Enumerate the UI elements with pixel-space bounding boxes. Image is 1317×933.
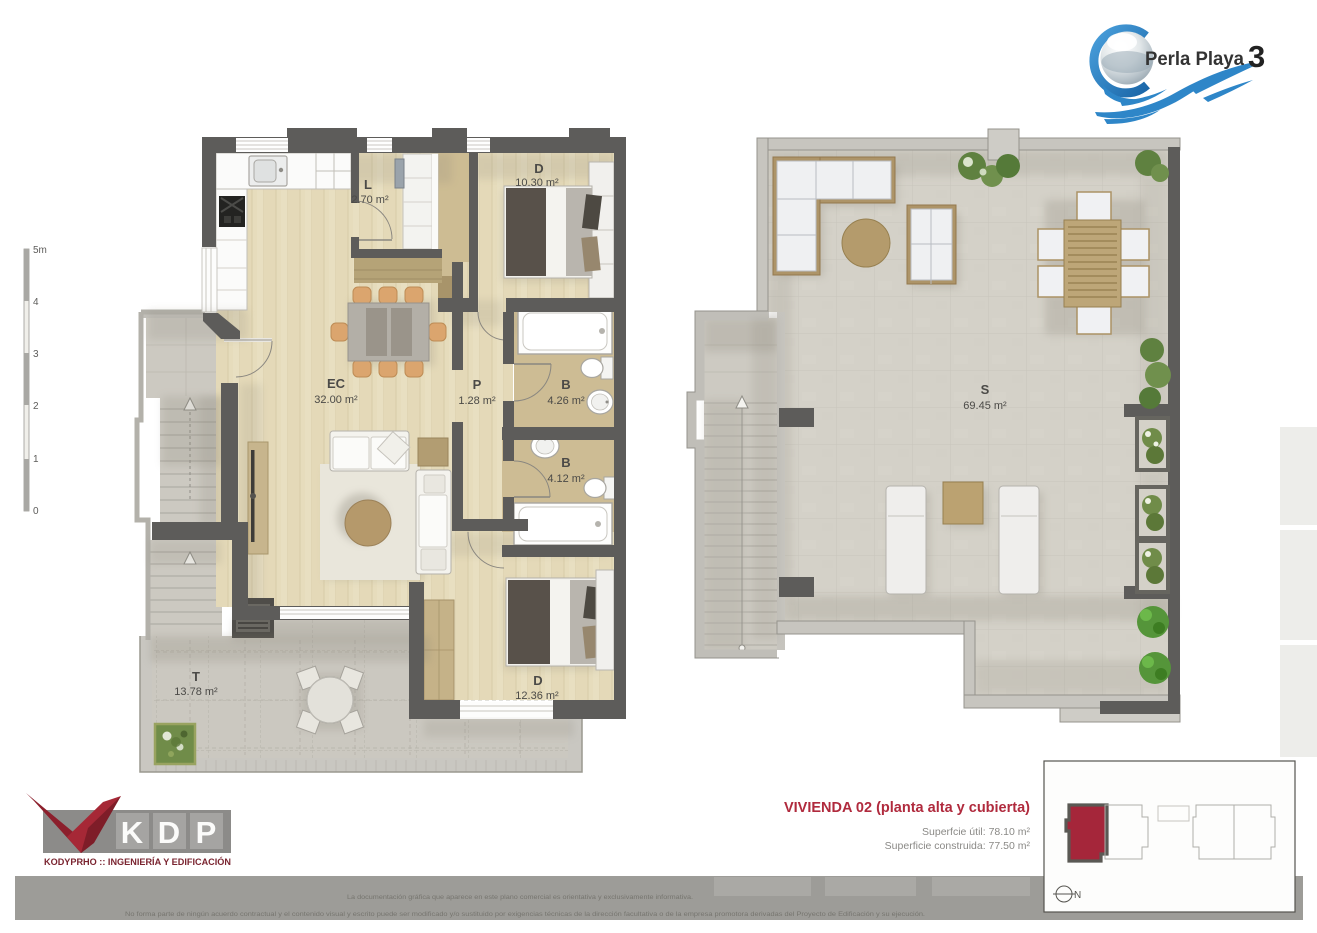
svg-text:0: 0	[33, 506, 39, 517]
svg-text:N: N	[1074, 890, 1081, 901]
svg-text:5m: 5m	[33, 245, 47, 256]
svg-text:D: D	[534, 161, 543, 176]
svg-text:K: K	[121, 815, 144, 850]
svg-text:EC: EC	[327, 376, 346, 391]
svg-text:Superficie construida: 77.50 m: Superficie construida: 77.50 m²	[885, 840, 1031, 852]
svg-text:L: L	[364, 177, 372, 192]
svg-text:La documentación gráfica que a: La documentación gráfica que aparece en …	[347, 894, 693, 901]
svg-text:T: T	[192, 669, 200, 684]
svg-text:3: 3	[33, 349, 39, 360]
svg-text:P: P	[196, 815, 217, 850]
svg-text:10.30 m²: 10.30 m²	[515, 177, 559, 189]
svg-text:KODYPRHO :: INGENIERÍA Y EDIFI: KODYPRHO :: INGENIERÍA Y EDIFICACIÓN	[44, 856, 231, 868]
svg-text:4: 4	[33, 297, 39, 308]
svg-text:4.12 m²: 4.12 m²	[547, 473, 585, 485]
svg-text:VIVIENDA 02 (planta alta y cub: VIVIENDA 02 (planta alta y cubierta)	[784, 800, 1030, 816]
svg-text:Superfcie útil: 78.10 m²: Superfcie útil: 78.10 m²	[922, 826, 1030, 838]
svg-text:B: B	[561, 377, 570, 392]
svg-text:No forma parte de ningún acuer: No forma parte de ningún acuerdo contrac…	[125, 911, 925, 918]
svg-text:69.45 m²: 69.45 m²	[963, 400, 1007, 412]
svg-text:B: B	[561, 455, 570, 470]
svg-text:S: S	[981, 382, 990, 397]
svg-text:2: 2	[33, 401, 39, 412]
svg-text:Perla Playa: Perla Playa	[1145, 49, 1244, 70]
svg-text:2.70 m²: 2.70 m²	[351, 194, 389, 206]
svg-text:12.36 m²: 12.36 m²	[515, 690, 559, 702]
svg-text:P: P	[473, 377, 482, 392]
svg-text:32.00 m²: 32.00 m²	[314, 394, 358, 406]
svg-text:13.78 m²: 13.78 m²	[174, 686, 218, 698]
svg-text:3: 3	[1248, 39, 1265, 74]
svg-text:D: D	[158, 815, 180, 850]
svg-text:1: 1	[33, 454, 39, 465]
svg-text:1.28 m²: 1.28 m²	[458, 395, 496, 407]
svg-text:D: D	[533, 673, 542, 688]
svg-text:4.26 m²: 4.26 m²	[547, 395, 585, 407]
